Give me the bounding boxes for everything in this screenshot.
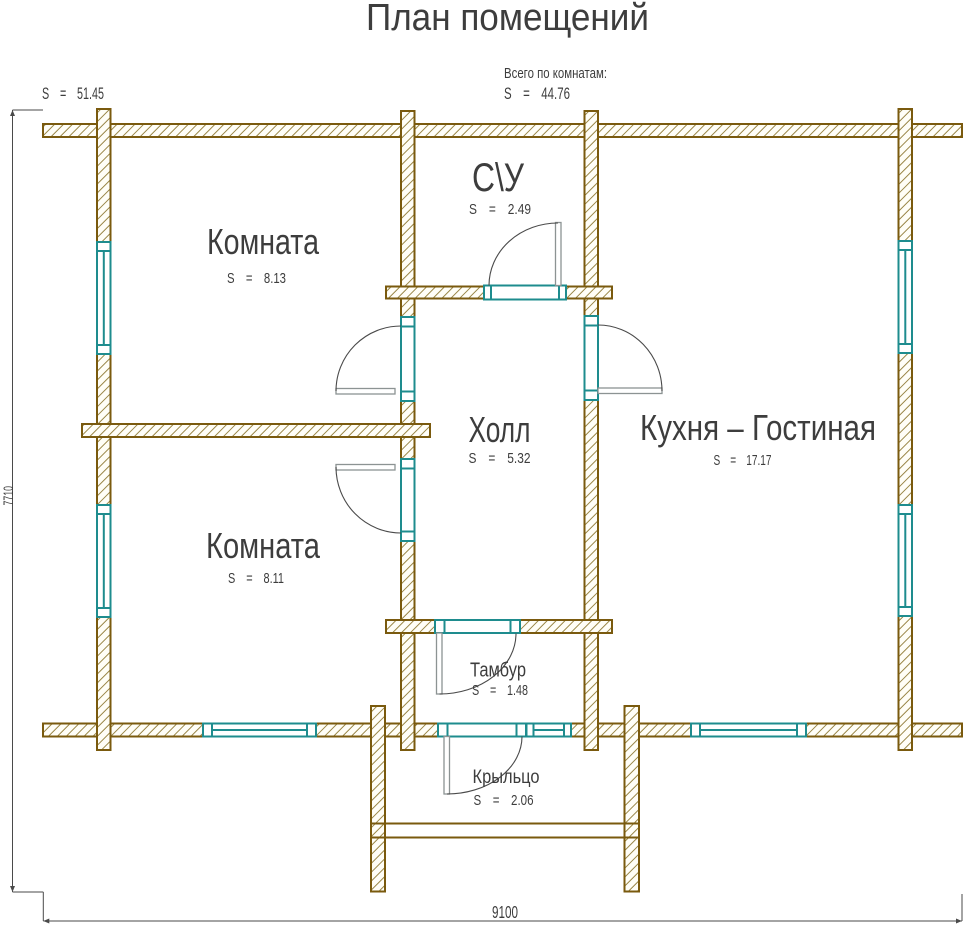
svg-text:9100: 9100 [492, 902, 518, 922]
svg-text:С\У: С\У [472, 156, 524, 200]
svg-text:S = 2.06: S = 2.06 [474, 792, 534, 809]
svg-text:Комната: Комната [206, 525, 321, 566]
svg-text:Кухня – Гостиная: Кухня – Гостиная [640, 407, 876, 448]
svg-text:S = 51.45: S = 51.45 [42, 85, 104, 103]
svg-text:Всего по комнатам:: Всего по комнатам: [504, 65, 607, 82]
svg-text:S = 44.76: S = 44.76 [504, 85, 570, 103]
svg-text:S = 17.17: S = 17.17 [714, 452, 772, 469]
svg-text:S = 8.13: S = 8.13 [227, 270, 286, 287]
svg-text:S = 5.32: S = 5.32 [469, 450, 531, 467]
svg-text:S = 2.49: S = 2.49 [469, 201, 531, 218]
svg-text:Холл: Холл [469, 409, 531, 450]
svg-text:Комната: Комната [207, 221, 320, 262]
svg-text:S = 8.11: S = 8.11 [228, 570, 284, 587]
svg-text:Крыльцо: Крыльцо [473, 767, 540, 788]
svg-text:7710: 7710 [0, 486, 16, 506]
svg-text:Тамбур: Тамбур [470, 660, 526, 682]
svg-text:S = 1.48: S = 1.48 [472, 682, 528, 699]
svg-text:План помещений: План помещений [366, 0, 649, 39]
